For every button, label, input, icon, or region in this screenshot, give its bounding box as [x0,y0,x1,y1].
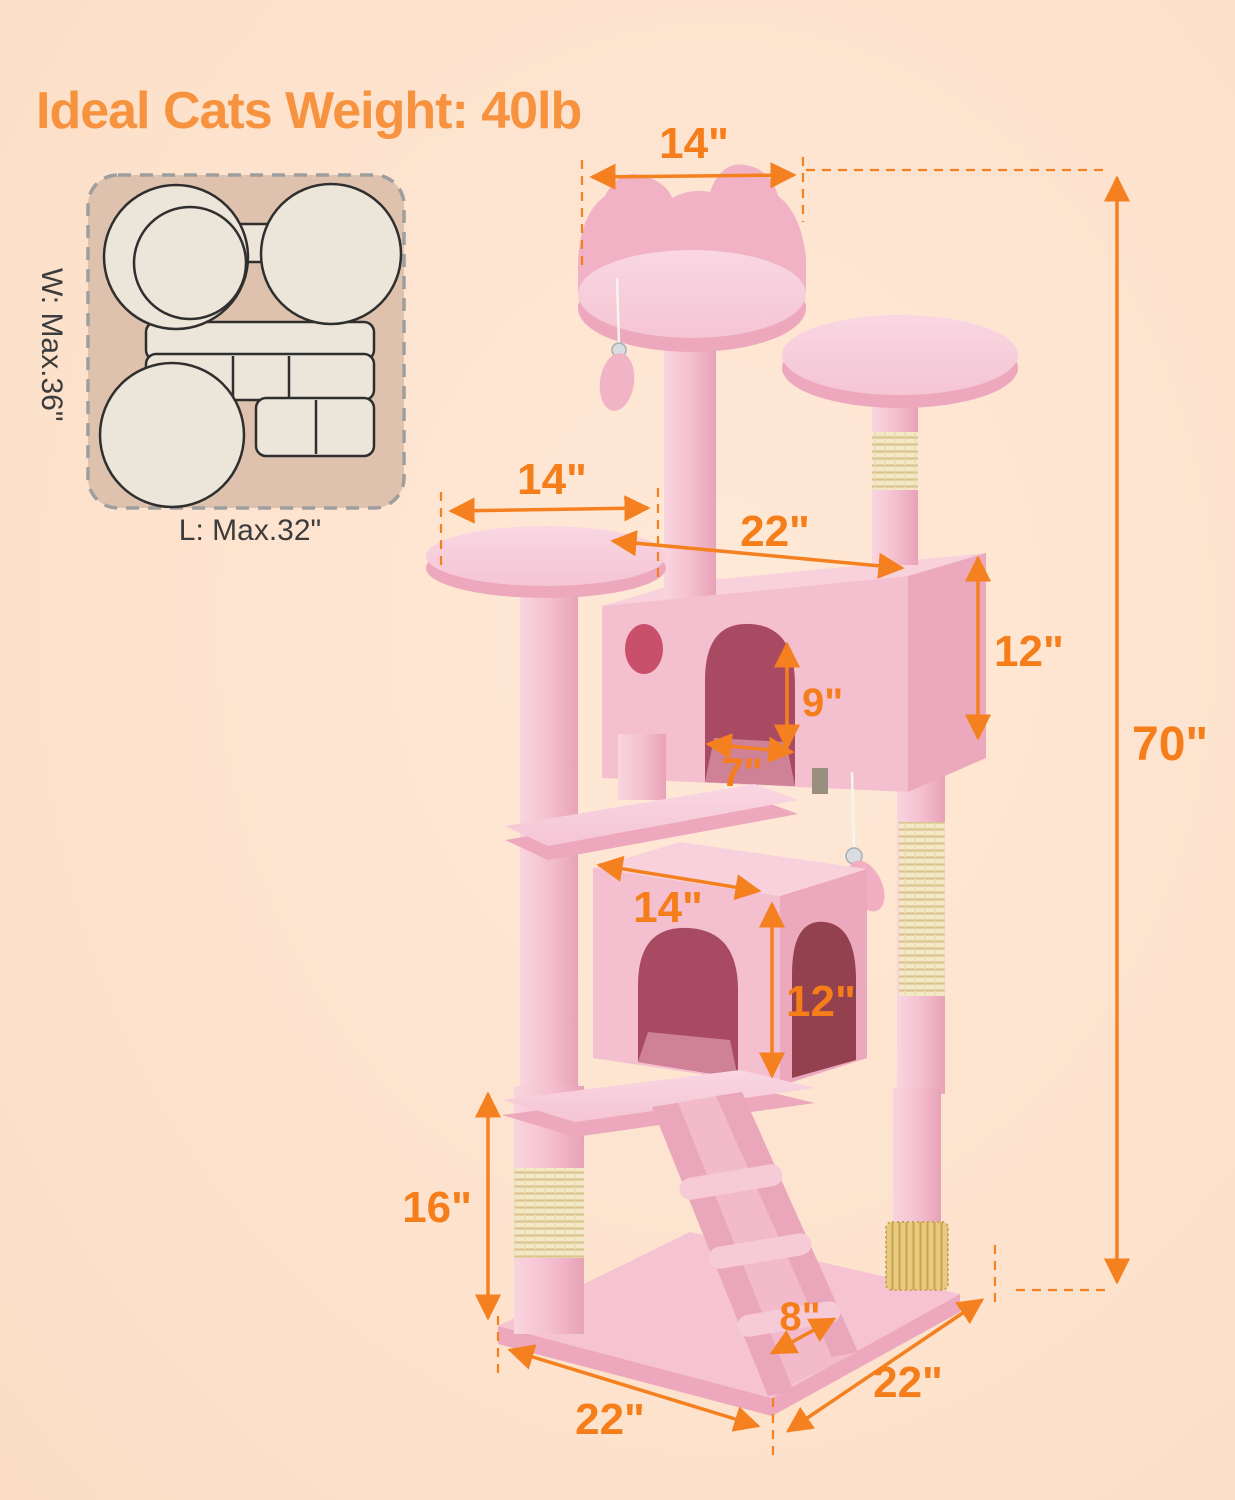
right-platform-post-sisal [872,432,918,490]
metal-bracket [812,768,828,794]
lower-condo [593,842,867,1086]
groomer-brush [886,1222,948,1290]
dimension-label: 14" [517,455,587,504]
footprint-inset: W: Max.36" L: Max.32" [35,175,404,547]
upper-condo-peephole [625,624,663,674]
footprint-platform-top [261,184,401,324]
top-perch [578,164,806,352]
dimension-label: 22" [873,1358,943,1407]
dimension-label: 8" [779,1295,820,1339]
dimension-label: 16" [402,1183,472,1232]
inset-width-label: W: Max.36" [35,268,68,421]
inset-length-label: L: Max.32" [179,514,321,547]
dimension-label: 22" [575,1395,645,1444]
footprint-perch-inner [134,207,246,319]
perch-surface [578,250,806,338]
footprint-platform-bottom [100,363,244,507]
dimension-arrow [592,175,794,177]
upper-condo-right-face [908,553,986,792]
dimension-label: 12" [786,977,856,1026]
diagram-svg: Ideal Cats Weight: 40lb W: Max.36" L: Ma… [0,0,1235,1500]
dimension-label: 14" [659,119,729,168]
right-platform-surface [782,315,1018,395]
condo-support-post [618,734,666,800]
right-long-post-sisal [899,822,945,996]
bottom-left-post-sisal [514,1168,584,1258]
dimension-label: 70" [1132,718,1208,771]
dimension-label: 9" [802,681,843,725]
left-platform-surface [426,526,666,586]
right-platform [782,315,1018,408]
dimension-label: 12" [994,627,1064,676]
left-platform [426,526,666,598]
page-title: Ideal Cats Weight: 40lb [36,82,581,140]
dimension-label: 22" [740,507,810,556]
product-dimension-diagram: Ideal Cats Weight: 40lb W: Max.36" L: Ma… [0,0,1235,1500]
dimension-label: 7" [721,751,762,795]
dimension-label: 14" [633,883,703,932]
